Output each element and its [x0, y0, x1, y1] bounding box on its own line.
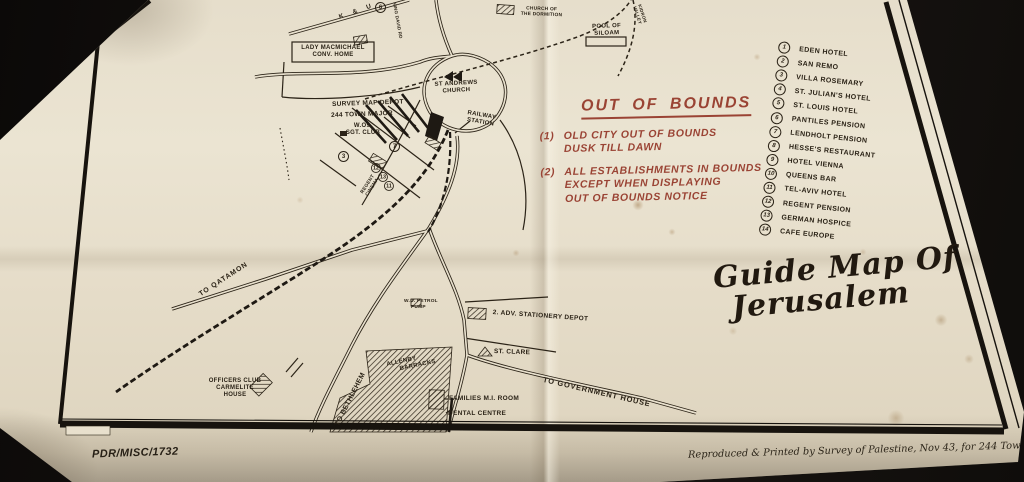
stationery-depot-building	[468, 308, 487, 320]
label-wd-petrol-pump: W.D. PETROL PUMP	[404, 299, 433, 310]
label-lady-macmichael: LADY MACMICHAEL CONV. HOME	[294, 45, 372, 59]
pool-of-siloam-outline	[586, 37, 626, 46]
item-number: (1)	[540, 130, 565, 157]
buildings	[250, 4, 626, 432]
map-number-3: 3	[338, 151, 349, 162]
legend-number: 14	[758, 223, 771, 236]
st-clare-building	[478, 347, 492, 356]
legend-number: 1	[778, 41, 791, 54]
label-pool-of-siloam: POOL OF SILOAM	[592, 23, 621, 38]
label-dental-centre: DENTAL CENTRE	[448, 410, 506, 418]
label-line: PUMP	[404, 305, 433, 311]
label-line: CARMELITE	[205, 385, 265, 392]
legend-number: 2	[776, 55, 789, 68]
label-wo-sgt-club: W.Os. SGT. CLUB	[344, 123, 382, 137]
out-of-bounds-item-1: (1) OLD CITY OUT OF BOUNDS DUSK TILL DAW…	[540, 125, 780, 156]
label-church-of-the-dormition: CHURCH OF THE DORMITION	[521, 6, 563, 19]
item-text: ALL ESTABLISHMENTS IN BOUNDS EXCEPT WHEN…	[564, 162, 762, 205]
out-of-bounds-title: OUT OF BOUNDS	[581, 94, 752, 120]
photo-of-map: LADY MACMICHAEL CONV. HOME SURVEY MAP DE…	[0, 0, 1024, 482]
item-text: OLD CITY OUT OF BOUNDS DUSK TILL DAWN	[564, 127, 718, 156]
label-families-mi-room: FAMILIES M.I. ROOM	[449, 395, 519, 403]
map-number-12: 12	[371, 163, 381, 173]
railway-station-building	[425, 112, 444, 141]
legend-number: 3	[775, 69, 788, 82]
label-line: SILOAM	[592, 30, 621, 38]
map-number-6: 6	[375, 2, 386, 13]
map-number-11: 11	[384, 181, 394, 191]
map-paper-sheet: LADY MACMICHAEL CONV. HOME SURVEY MAP DE…	[0, 0, 1024, 482]
label-line: LADY MACMICHAEL	[294, 45, 372, 52]
label-st-andrews-church: ST ANDREWS CHURCH	[432, 79, 481, 96]
out-of-bounds-item-2: (2) ALL ESTABLISHMENTS IN BOUNDS EXCEPT …	[540, 162, 781, 206]
label-line: W.Os.	[344, 123, 382, 130]
label-line: CONV. HOME	[294, 52, 372, 59]
label-line: HOUSE	[205, 392, 265, 399]
legend-label: EDEN HOTEL	[799, 46, 849, 58]
families-mi-building	[429, 390, 445, 410]
label-line: SGT. CLUB	[344, 130, 382, 137]
item-number: (2)	[540, 166, 565, 206]
legend-number: 13	[760, 209, 773, 222]
label-line: OFFICERS CLUB	[205, 378, 265, 385]
legend-label: CAFE EUROPE	[780, 228, 835, 241]
frame-corner-notch	[66, 426, 110, 435]
out-of-bounds-notice: OUT OF BOUNDS (1) OLD CITY OUT OF BOUNDS…	[539, 93, 781, 206]
label-officers-club: OFFICERS CLUB CARMELITE HOUSE	[205, 378, 265, 399]
legend-label: SAN REMO	[797, 60, 838, 71]
label-line: DUSK TILL DAWN	[564, 140, 717, 156]
dormition-building	[497, 4, 515, 14]
map-number-7: 7	[389, 141, 400, 152]
label-st-clare: ST. CLARE	[494, 348, 531, 357]
